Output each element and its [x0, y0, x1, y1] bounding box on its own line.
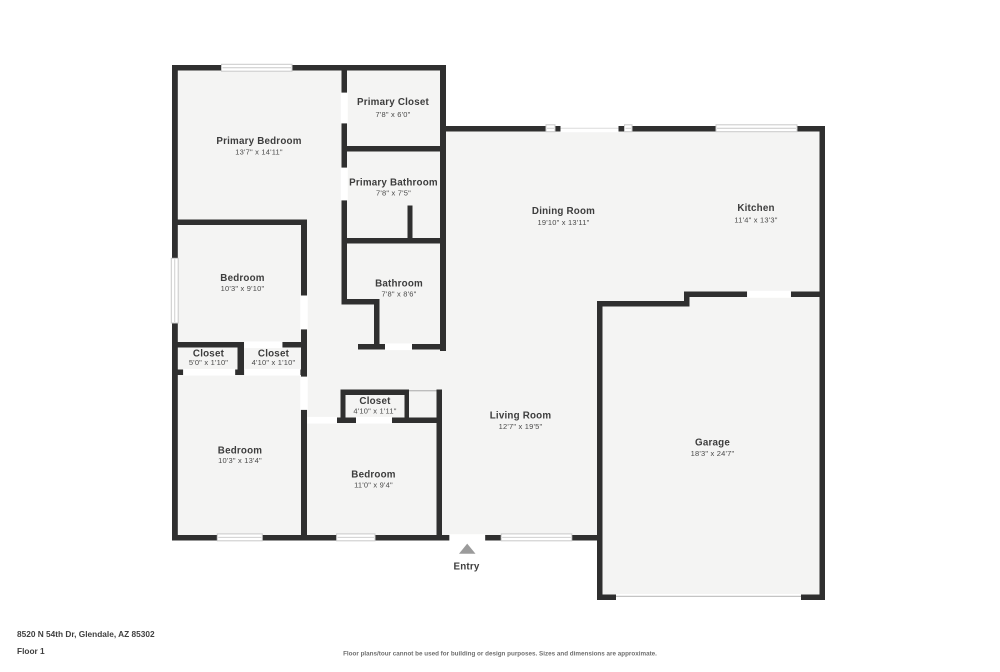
- svg-text:7'8" x 6'0": 7'8" x 6'0": [376, 110, 411, 119]
- svg-text:19'10" x 13'11": 19'10" x 13'11": [538, 218, 590, 227]
- svg-text:Living Room: Living Room: [490, 410, 552, 421]
- svg-text:Bedroom: Bedroom: [218, 445, 262, 456]
- svg-text:7'8" x 8'6": 7'8" x 8'6": [382, 290, 417, 299]
- svg-text:Bedroom: Bedroom: [351, 469, 395, 480]
- svg-text:Floor 1: Floor 1: [17, 646, 45, 656]
- svg-text:5'0" x 1'10": 5'0" x 1'10": [189, 358, 228, 367]
- svg-text:Primary Bedroom: Primary Bedroom: [216, 136, 301, 147]
- svg-text:Garage: Garage: [695, 437, 730, 448]
- svg-text:11'0" x 9'4": 11'0" x 9'4": [354, 481, 393, 490]
- svg-text:Bathroom: Bathroom: [375, 278, 423, 289]
- svg-text:Kitchen: Kitchen: [737, 203, 774, 214]
- svg-text:10'3" x 9'10": 10'3" x 9'10": [221, 284, 265, 293]
- svg-text:Closet: Closet: [359, 396, 391, 407]
- svg-text:12'7" x 19'5": 12'7" x 19'5": [499, 422, 543, 431]
- svg-text:11'4" x 13'3": 11'4" x 13'3": [734, 216, 777, 225]
- svg-text:7'8" x 7'5": 7'8" x 7'5": [376, 189, 411, 198]
- svg-text:Bedroom: Bedroom: [220, 273, 264, 284]
- svg-text:4'10" x 1'11": 4'10" x 1'11": [353, 407, 396, 416]
- svg-text:4'10" x 1'10": 4'10" x 1'10": [252, 358, 296, 367]
- svg-text:Primary Bathroom: Primary Bathroom: [349, 177, 438, 188]
- svg-text:10'3" x 13'4": 10'3" x 13'4": [218, 456, 262, 465]
- svg-text:Primary Closet: Primary Closet: [357, 97, 429, 108]
- svg-text:Dining Room: Dining Room: [532, 206, 595, 217]
- svg-text:18'3" x 24'7": 18'3" x 24'7": [691, 449, 735, 458]
- svg-text:Entry: Entry: [453, 562, 479, 573]
- svg-text:Floor plans/tour cannot be use: Floor plans/tour cannot be used for buil…: [343, 650, 657, 657]
- svg-text:13'7" x 14'11": 13'7" x 14'11": [235, 148, 283, 157]
- svg-text:8520 N 54th Dr, Glendale, AZ 8: 8520 N 54th Dr, Glendale, AZ 85302: [17, 629, 155, 639]
